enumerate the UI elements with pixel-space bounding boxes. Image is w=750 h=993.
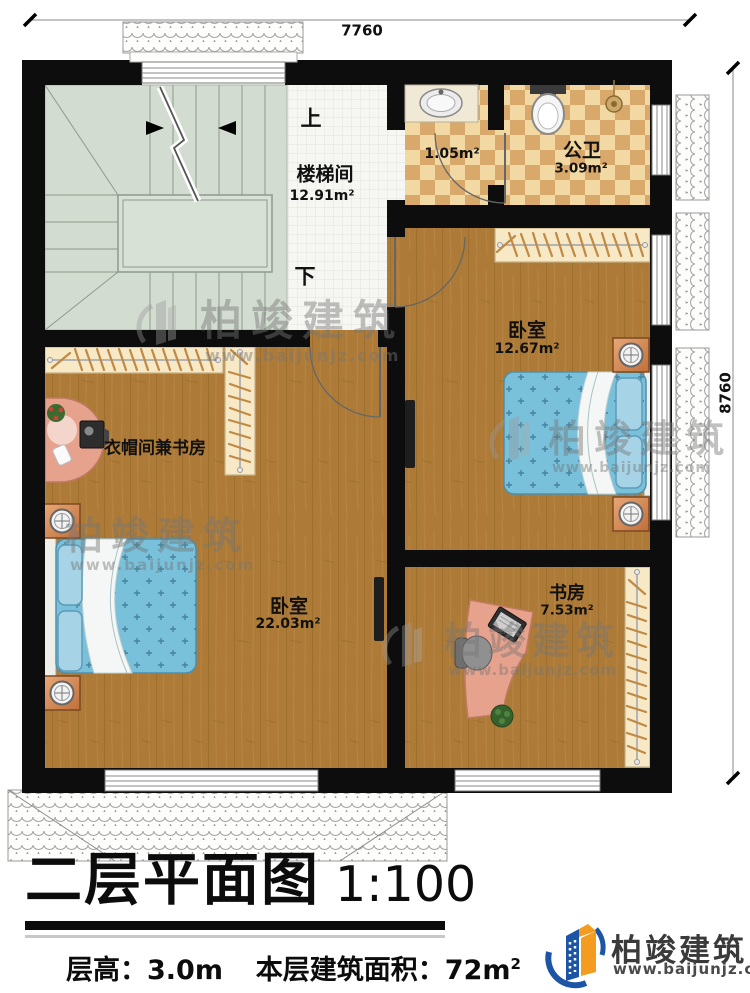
brand-logo-icon xyxy=(548,924,603,985)
plant xyxy=(47,404,65,422)
watermark-brand: 柏竣建筑 xyxy=(65,517,249,555)
floor-plan-drawing xyxy=(0,0,750,993)
cloakroom-name: 衣帽间兼书房 xyxy=(104,441,206,458)
plant xyxy=(491,705,513,727)
watermark-brand: 柏竣建筑 xyxy=(548,420,732,458)
wardrobe-study xyxy=(625,567,650,767)
stair-down-label: 下 xyxy=(295,267,316,288)
bedroom-main-name: 卧室 xyxy=(270,598,308,617)
floor-area: 本层建筑面积：72m xyxy=(256,955,511,986)
stairwell-name: 楼梯间 xyxy=(296,166,353,185)
bedroom-right-area: 12.67m² xyxy=(494,342,559,356)
floor-height: 层高：3.0m xyxy=(66,955,223,986)
study-name: 书房 xyxy=(549,585,585,603)
dimension-right: 8760 xyxy=(719,372,734,414)
brand-logo-site: www.baijunjz.com xyxy=(613,960,750,978)
plan-scale: 1:100 xyxy=(335,860,476,909)
plan-footer: 层高：3.0m 本层建筑面积：72m2 xyxy=(66,948,521,987)
dimension-top: 7760 xyxy=(341,24,383,39)
watermark-site: www.baijunjz.com xyxy=(205,348,400,364)
wardrobe-cloakroom-top xyxy=(45,347,223,373)
watermark-site: www.baijunjz.com xyxy=(552,461,711,475)
watermark-brand: 柏竣建筑 xyxy=(200,300,404,342)
tv-bedroom-right xyxy=(405,400,415,468)
stair-up-label: 上 xyxy=(301,109,322,130)
bathroom-name: 公卫 xyxy=(563,142,601,161)
stairwell-area: 12.91m² xyxy=(289,189,354,203)
floor-plan-canvas: 7760 8760 上 下 楼梯间 12.91m² 1.05m² 公卫 3.09… xyxy=(0,0,750,993)
bedroom-right-name: 卧室 xyxy=(508,322,546,341)
bath-lobby-area: 1.05m² xyxy=(424,147,479,161)
wardrobe-bedroom-right xyxy=(495,228,650,262)
wardrobe-cloakroom-side xyxy=(225,347,255,475)
study-area: 7.53m² xyxy=(540,604,593,618)
watermark-site: www.baijunjz.com xyxy=(448,663,617,678)
watermark-brand: 柏竣建筑 xyxy=(444,622,620,660)
plan-title: 二层平面图 xyxy=(25,852,320,909)
title-rule-thin xyxy=(25,935,445,938)
tv-bedroom-main xyxy=(374,577,384,641)
floor-area-sup: 2 xyxy=(511,955,521,973)
bedroom-main-area: 22.03m² xyxy=(255,617,320,631)
watermark-site: www.baijunjz.com xyxy=(70,558,255,573)
toilet xyxy=(530,85,566,134)
title-rule-thick xyxy=(25,921,445,930)
pillow xyxy=(58,611,82,671)
bathroom-area: 3.09m² xyxy=(554,162,607,176)
